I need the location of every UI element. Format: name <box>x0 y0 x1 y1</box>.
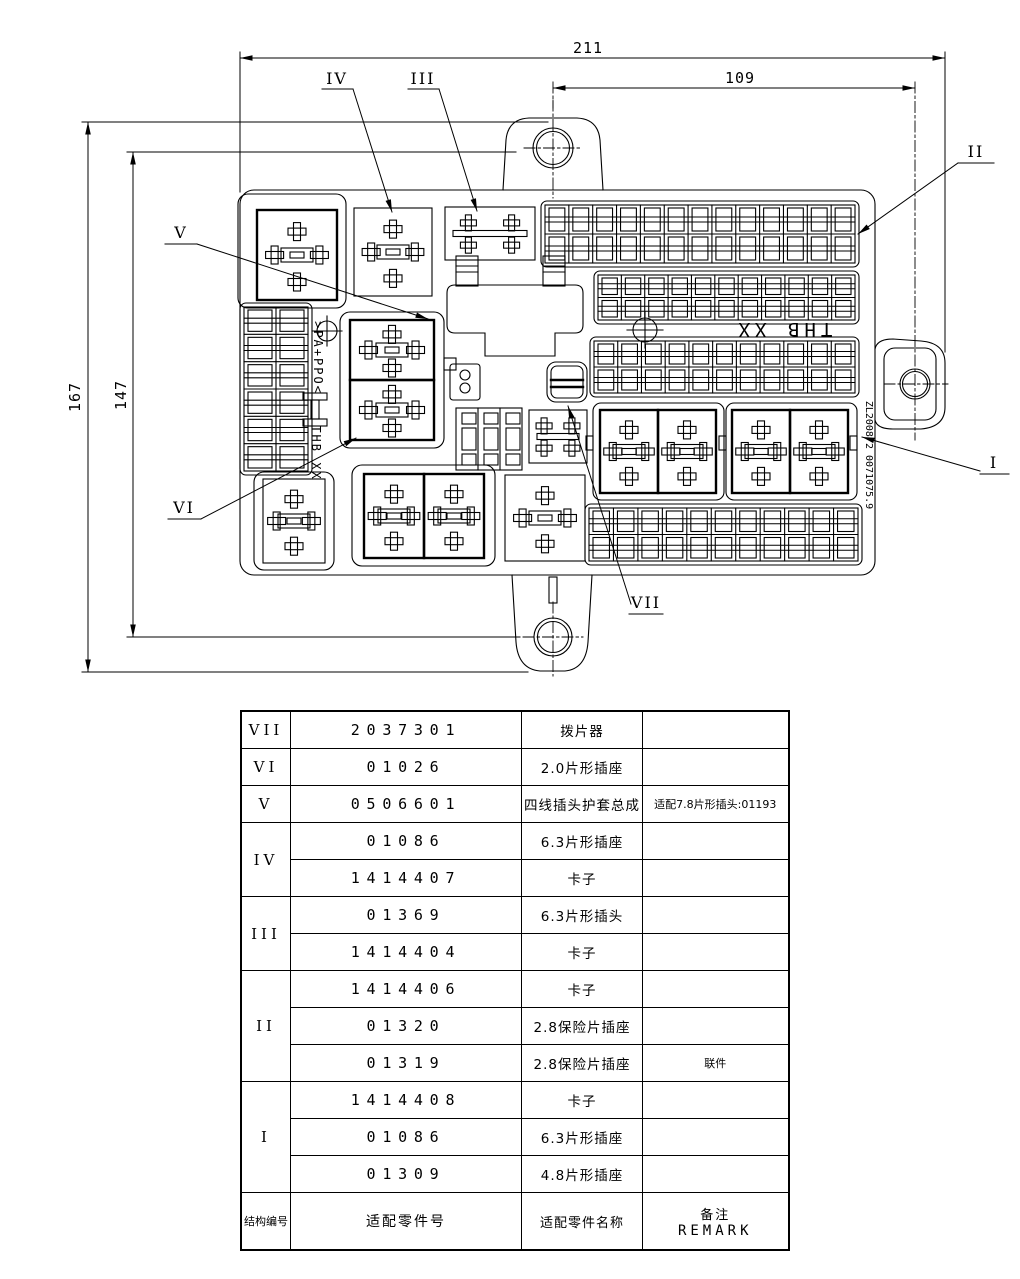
remark-cell <box>643 971 789 1008</box>
header-remark: 备注 REMARK <box>643 1193 789 1251</box>
header-name: 适配零件名称 <box>522 1193 643 1251</box>
group-cell: V <box>241 786 291 823</box>
remark-cell <box>643 1008 789 1045</box>
part-number-cell: 1414406 <box>291 971 522 1008</box>
header-group: 结构编号 <box>241 1193 291 1251</box>
part-name-cell: 卡子 <box>522 860 643 897</box>
callout-V: V <box>173 223 188 242</box>
dim-right-width: 109 <box>725 69 755 87</box>
remark-cell <box>643 711 789 749</box>
part-number-cell: 01026 <box>291 749 522 786</box>
remark-cell: 联件 <box>643 1045 789 1082</box>
remark-cell: 适配7.8片形插头:01193 <box>643 786 789 823</box>
table-row: VII2037301拨片器 <box>241 711 789 749</box>
remark-cell <box>643 1082 789 1119</box>
part-name-cell: 2.0片形插座 <box>522 749 643 786</box>
part-name-cell: 2.8保险片插座 <box>522 1008 643 1045</box>
dimension-lines <box>82 52 1009 672</box>
callout-VII: VII <box>630 593 661 612</box>
table-row: I1414408卡子 <box>241 1082 789 1119</box>
part-name-cell: 卡子 <box>522 1082 643 1119</box>
table-row: 013094.8片形插座 <box>241 1156 789 1193</box>
engineering-drawing-page: { "drawing": { "dimensions": { "total_wi… <box>0 0 1020 1279</box>
parts-table: VII2037301拨片器VI010262.0片形插座V0506601四线插头护… <box>240 710 790 1251</box>
part-name-cell: 四线插头护套总成 <box>522 786 643 823</box>
part-number-cell: 01086 <box>291 1119 522 1156</box>
material-marking-text: >PA+PPO< <box>311 321 325 395</box>
part-number-cell: 01086 <box>291 823 522 860</box>
part-number-cell: 1414407 <box>291 860 522 897</box>
part-name-cell: 卡子 <box>522 971 643 1008</box>
group-cell: VII <box>241 711 291 749</box>
group-cell: II <box>241 971 291 1082</box>
part-number-cell: 01369 <box>291 897 522 934</box>
center-brand-text: THB XX <box>734 318 833 340</box>
part-name-cell: 拨片器 <box>522 711 643 749</box>
remark-cell <box>643 1156 789 1193</box>
callout-IV: IV <box>326 69 348 88</box>
callout-VI: VI <box>172 498 195 517</box>
dim-inner-height: 147 <box>112 380 130 410</box>
patent-number-text: ZL2008 2 0071075.9 <box>863 401 874 509</box>
callout-I: I <box>990 453 998 472</box>
table-row: 1414407卡子 <box>241 860 789 897</box>
remark-cell <box>643 823 789 860</box>
part-number-cell: 01309 <box>291 1156 522 1193</box>
header-remark-en: REMARK <box>645 1223 786 1239</box>
remark-cell <box>643 934 789 971</box>
group-cell: VI <box>241 749 291 786</box>
table-row: 1414404卡子 <box>241 934 789 971</box>
remark-cell <box>643 860 789 897</box>
header-part: 适配零件号 <box>291 1193 522 1251</box>
remark-cell <box>643 1119 789 1156</box>
part-number-cell: 01320 <box>291 1008 522 1045</box>
table-row: IV010866.3片形插座 <box>241 823 789 860</box>
dim-total-height: 167 <box>66 382 84 412</box>
dim-total-width: 211 <box>573 39 603 57</box>
group-cell: IV <box>241 823 291 897</box>
part-name-cell: 2.8保险片插座 <box>522 1045 643 1082</box>
part-name-cell: 卡子 <box>522 934 643 971</box>
part-number-cell: 01319 <box>291 1045 522 1082</box>
part-number-cell: 0506601 <box>291 786 522 823</box>
table-row: III013696.3片形插头 <box>241 897 789 934</box>
table-row: 013202.8保险片插座 <box>241 1008 789 1045</box>
remark-cell <box>643 749 789 786</box>
part-number-cell: 1414404 <box>291 934 522 971</box>
part-number-cell: 2037301 <box>291 711 522 749</box>
header-remark-cn: 备注 <box>645 1204 786 1223</box>
table-row: II1414406卡子 <box>241 971 789 1008</box>
part-number-cell: 1414408 <box>291 1082 522 1119</box>
side-brand-text: THB XX <box>309 425 323 480</box>
callout-II: II <box>968 142 985 161</box>
fusebox-outline <box>238 100 948 676</box>
table-row: V0506601四线插头护套总成适配7.8片形插头:01193 <box>241 786 789 823</box>
callout-III: III <box>411 69 436 88</box>
table-row: VI010262.0片形插座 <box>241 749 789 786</box>
part-name-cell: 4.8片形插座 <box>522 1156 643 1193</box>
table-row: 010866.3片形插座 <box>241 1119 789 1156</box>
part-name-cell: 6.3片形插座 <box>522 823 643 860</box>
table-header-row: 结构编号 适配零件号 适配零件名称 备注 REMARK <box>241 1193 789 1251</box>
part-name-cell: 6.3片形插头 <box>522 897 643 934</box>
table-row: 013192.8保险片插座联件 <box>241 1045 789 1082</box>
part-name-cell: 6.3片形插座 <box>522 1119 643 1156</box>
group-cell: I <box>241 1082 291 1193</box>
group-cell: III <box>241 897 291 971</box>
technical-drawing: 211 109 167 147 IV III II V VI VII I THB… <box>0 0 1020 700</box>
remark-cell <box>643 897 789 934</box>
